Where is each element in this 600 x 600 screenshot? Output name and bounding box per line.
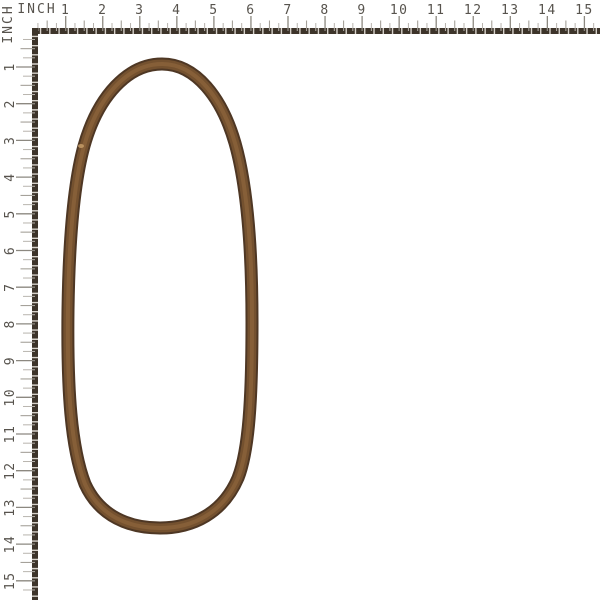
left-ruler-number: 10 [3,388,18,407]
top-ruler-number: 1 [61,3,70,18]
left-ruler-number: 3 [3,136,18,145]
top-ruler-number: 3 [135,3,144,18]
left-inch-ruler: 123456789101112131415 [3,28,35,600]
left-ruler-number: 7 [3,283,18,292]
top-inch-ruler: 123456789101112131415 [32,3,600,31]
left-ruler-number: 11 [3,425,18,444]
top-ruler-number: 7 [283,3,292,18]
belt-scuff-mark [78,144,84,148]
left-ruler-number: 5 [3,209,18,218]
belt-outline-edge [68,64,252,528]
top-ruler-number: 15 [575,3,594,18]
top-ruler-number: 4 [172,3,181,18]
top-ruler-number: 14 [538,3,557,18]
belt [68,64,252,528]
left-ruler-number: 2 [3,99,18,108]
left-ruler-number: 13 [3,498,18,517]
top-ruler-number: 13 [501,3,520,18]
top-ruler-unit-label: INCH [17,2,56,17]
belt-center-highlight [68,64,252,528]
product-photo-canvas: 123456789101112131415 123456789101112131… [0,0,600,600]
top-ruler-number: 5 [209,3,218,18]
left-ruler-number: 15 [3,571,18,590]
left-ruler-number: 4 [3,172,18,181]
top-ruler-number: 10 [390,3,409,18]
top-ruler-number: 11 [427,3,446,18]
left-ruler-number: 1 [3,62,18,71]
left-ruler-number: 6 [3,246,18,255]
belt-body [68,64,252,528]
left-ruler-number: 9 [3,356,18,365]
top-ruler-number: 9 [357,3,366,18]
left-ruler-number: 8 [3,319,18,328]
left-ruler-unit-label: INCH [1,4,16,43]
top-ruler-number: 2 [98,3,107,18]
top-ruler-number: 6 [246,3,255,18]
left-ruler-number: 14 [3,535,18,554]
top-ruler-number: 12 [464,3,483,18]
top-ruler-number: 8 [320,3,329,18]
ruler-unit-labels: INCHINCH [1,2,57,44]
left-ruler-number: 12 [3,461,18,480]
scene-svg: 123456789101112131415 123456789101112131… [0,0,600,600]
